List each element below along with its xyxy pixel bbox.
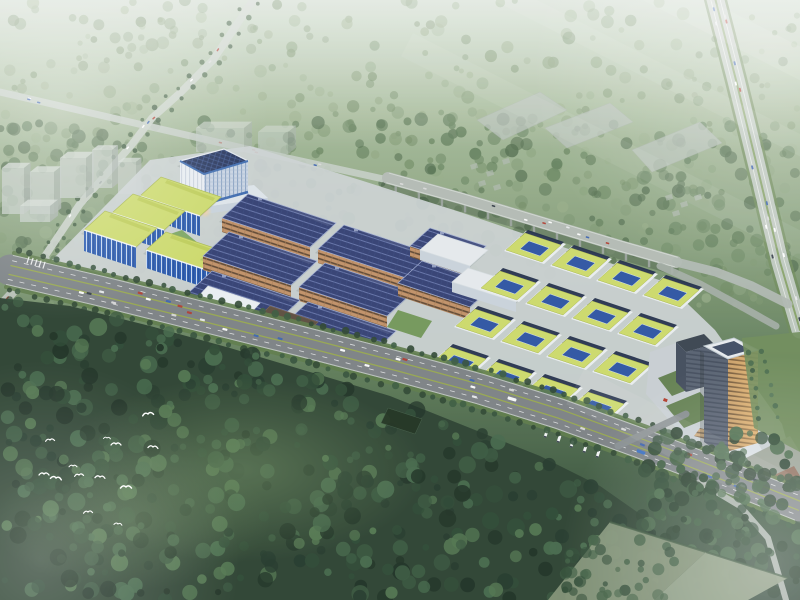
aerial-industrial-park-render <box>0 0 800 600</box>
atmosphere-haze <box>0 0 800 600</box>
render-canvas <box>0 0 800 600</box>
